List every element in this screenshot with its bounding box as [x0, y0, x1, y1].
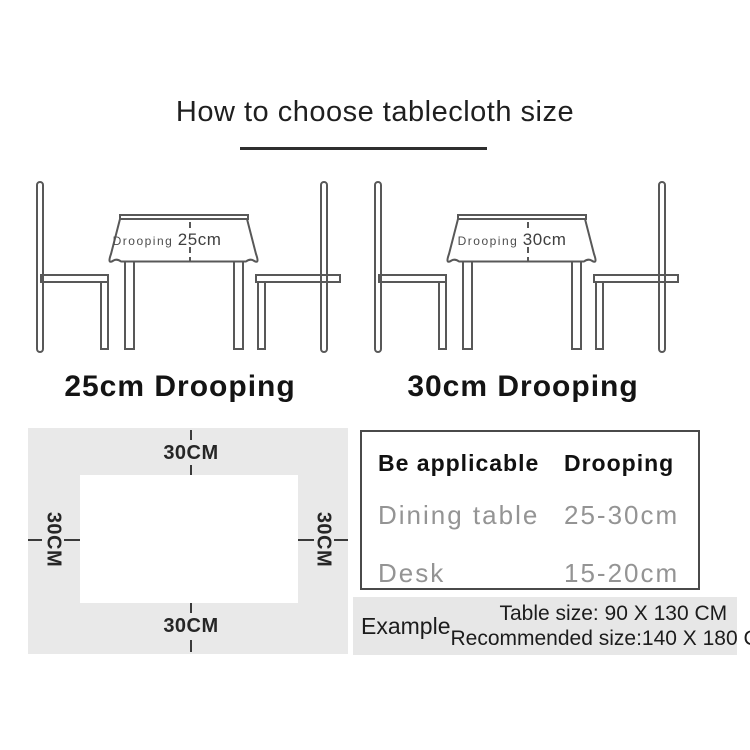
spec-header-drooping: Drooping: [564, 450, 674, 477]
drooping-annotation-label: Drooping: [113, 234, 174, 248]
page-title: How to choose tablecloth size: [0, 96, 750, 129]
example-recommended-size: Recommended size:140 X 180 CM: [450, 626, 750, 651]
title-underline: [240, 147, 487, 150]
example-box: Example Table size: 90 X 130 CM Recommen…: [353, 597, 737, 655]
example-sizes: Table size: 90 X 130 CM Recommended size…: [450, 601, 750, 651]
caption-30cm-drooping: 30cm Drooping: [358, 370, 688, 404]
tick-right-outer: [334, 539, 348, 541]
drooping-spec-table: Be applicable Drooping Dining table 25-3…: [360, 430, 700, 590]
table-chairs-illustration-30cm: [358, 175, 688, 360]
dimension-label-left: 30CM: [42, 510, 65, 570]
table-surface-rect: [80, 475, 298, 603]
spec-row-dining-label: Dining table: [378, 500, 539, 531]
overhang-dimension-panel: 30CM 30CM 30CM 30CM: [28, 428, 348, 654]
tick-bottom-outer: [190, 640, 192, 652]
tick-top-outer: [190, 430, 192, 440]
tablecloth-size-infographic: How to choose tablecloth size: [0, 0, 750, 750]
dimension-label-right: 30CM: [312, 510, 335, 570]
spec-row-dining-value: 25-30cm: [564, 500, 679, 531]
tick-left-outer: [28, 539, 42, 541]
drooping-annotation-value: 25cm: [178, 230, 222, 249]
spec-row-desk-value: 15-20cm: [564, 558, 679, 589]
spec-header-applicable: Be applicable: [378, 450, 539, 477]
drooping-annotation-25cm: Drooping 25cm: [97, 230, 237, 250]
tick-top-inner: [190, 465, 192, 475]
table-chairs-illustration-25cm: [20, 175, 350, 360]
drooping-annotation-value: 30cm: [523, 230, 567, 249]
dimension-label-top: 30CM: [161, 442, 221, 465]
caption-25cm-drooping: 25cm Drooping: [15, 370, 345, 404]
tick-left-inner: [64, 539, 80, 541]
spec-row-desk-label: Desk: [378, 558, 445, 589]
dimension-label-bottom: 30CM: [161, 615, 221, 638]
drooping-annotation-label: Drooping: [458, 234, 519, 248]
drooping-annotation-30cm: Drooping 30cm: [442, 230, 582, 250]
example-label: Example: [361, 613, 450, 640]
tick-bottom-inner: [190, 603, 192, 613]
example-table-size: Table size: 90 X 130 CM: [450, 601, 750, 626]
